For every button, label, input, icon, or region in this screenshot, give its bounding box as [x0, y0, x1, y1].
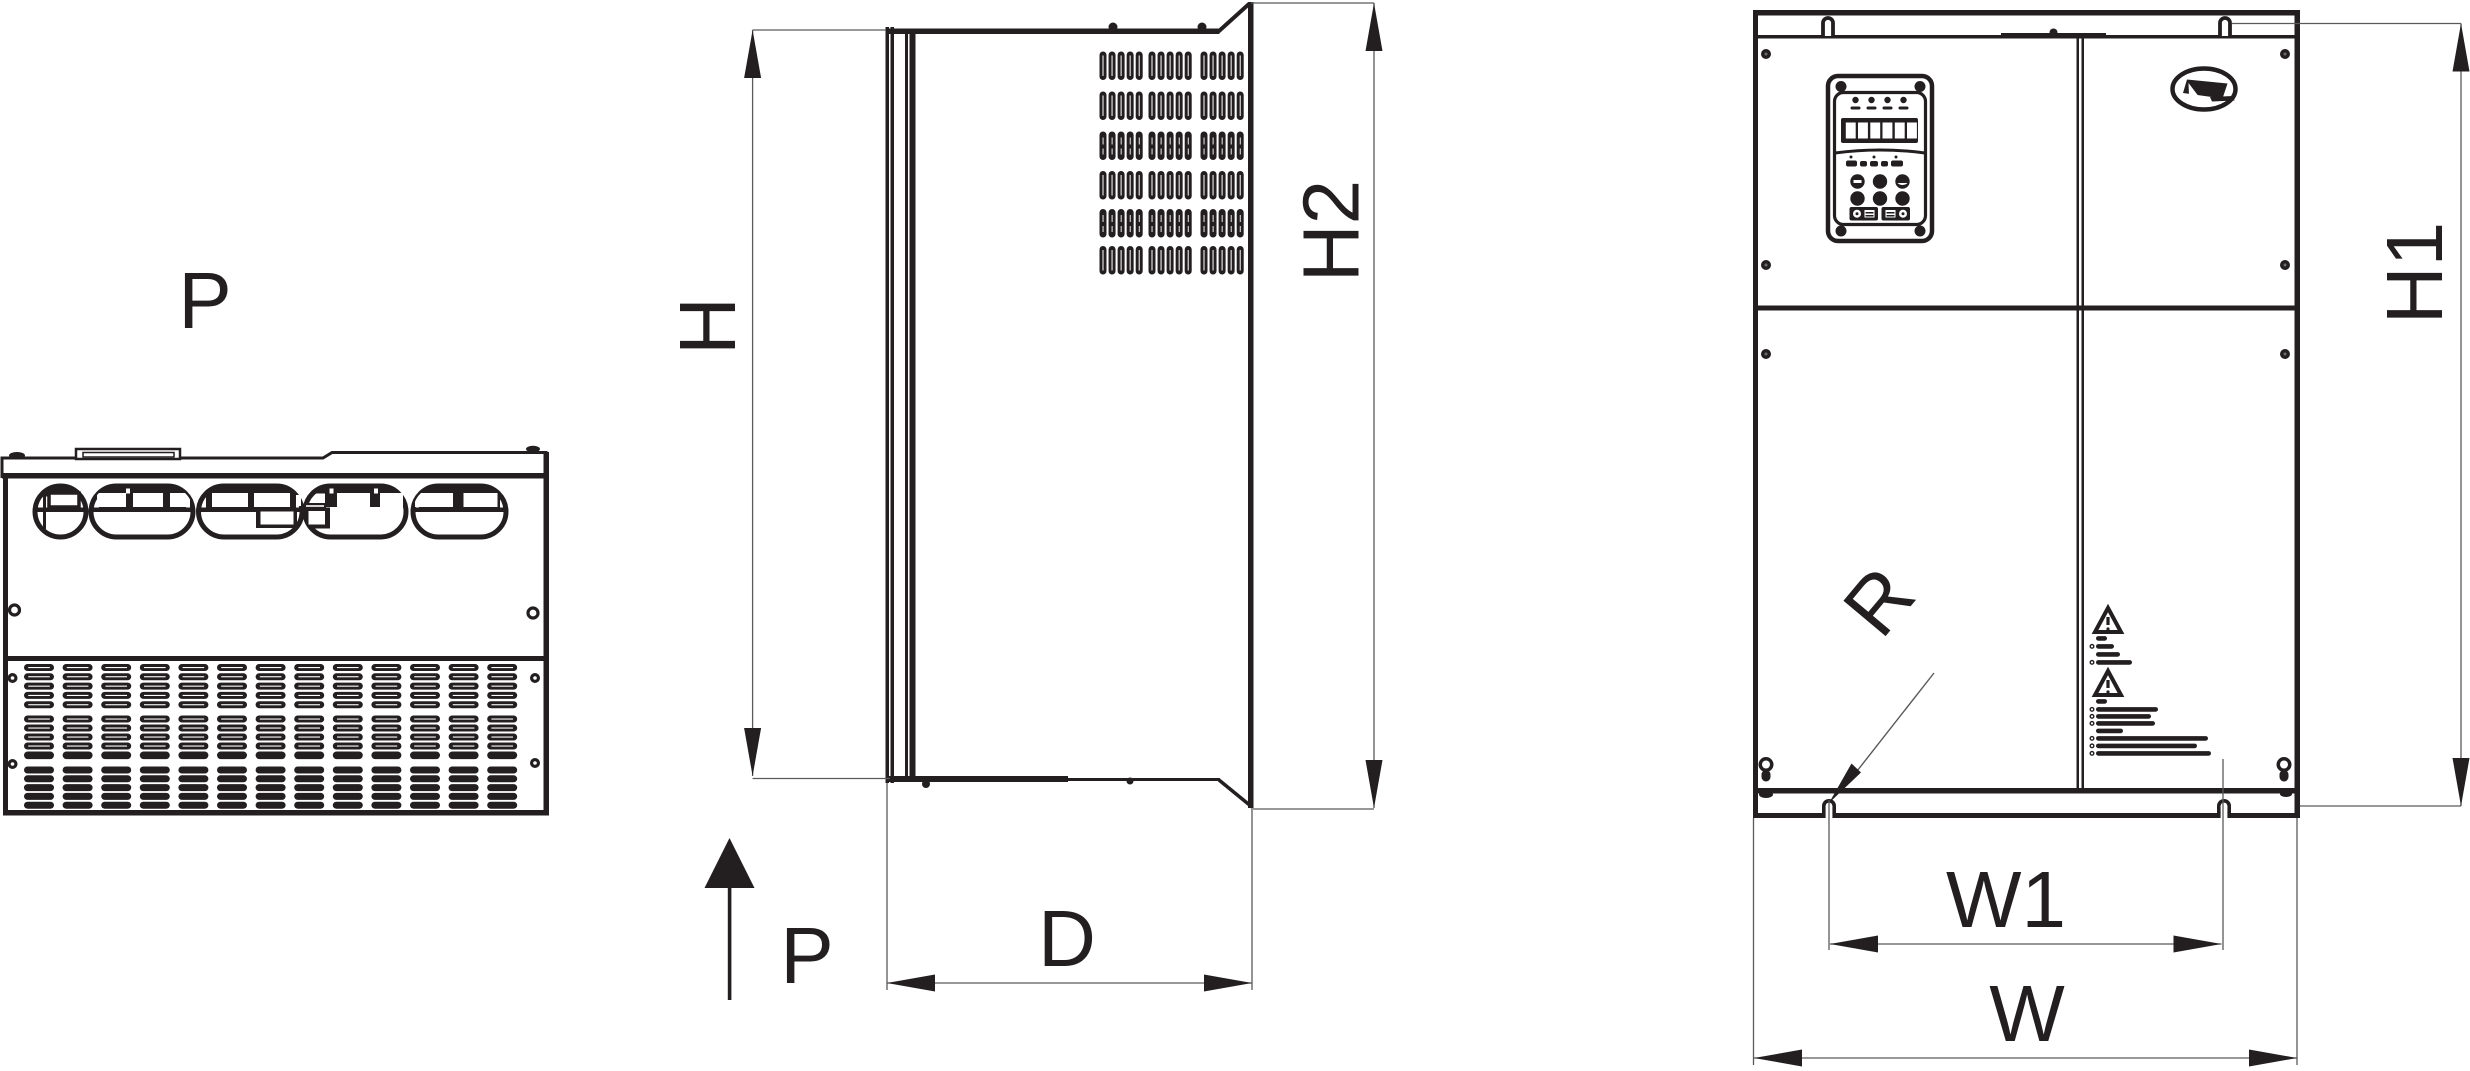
svg-text:H1: H1: [2370, 222, 2459, 324]
svg-text:W: W: [1989, 969, 2065, 1058]
svg-text:W1: W1: [1946, 855, 2066, 944]
svg-text:D: D: [1038, 894, 1096, 983]
svg-text:H2: H2: [1287, 180, 1376, 282]
svg-text:H: H: [663, 297, 752, 355]
svg-text:P: P: [780, 911, 833, 1000]
svg-text:P: P: [178, 256, 231, 345]
